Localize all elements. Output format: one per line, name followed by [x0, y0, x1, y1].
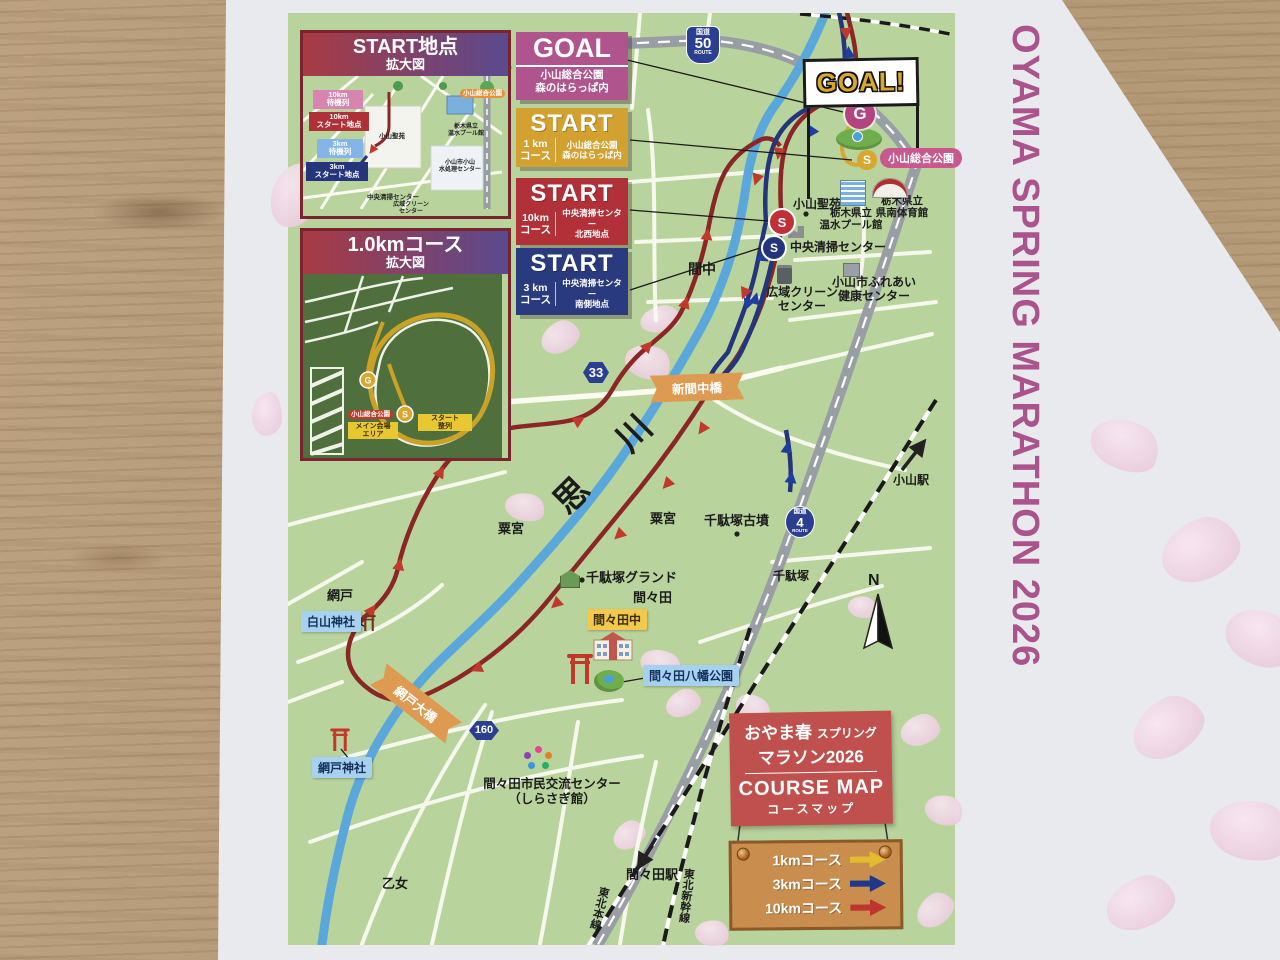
inset-1km-title: 1.0kmコース [303, 234, 508, 256]
label-hakusan-jinja: 白山神社 [301, 611, 361, 632]
inset-label-clean: 広域クリーン センター [388, 202, 434, 216]
label-otome: 乙女 [382, 876, 408, 891]
pool-building-icon [840, 180, 866, 206]
label-kennan-gym: 栃木県立 県南体育館 [866, 195, 938, 220]
inset-1km-course: 1.0kmコース 拡大図 G S [300, 228, 511, 461]
start-10km-course: 10km コース [520, 212, 556, 236]
label-oyama-sogo-park: 小山総合公園 [880, 148, 962, 168]
label-mamada: 間々田 [633, 590, 672, 605]
label-sendazuka: 千駄塚 [773, 569, 809, 583]
pond-icon [604, 675, 614, 683]
label-mamada-station: 間々田駅 [626, 867, 678, 882]
cherry-petal [1099, 868, 1182, 939]
start-marker-10km: S [768, 208, 796, 236]
legend-title-en-sub: コースマップ [731, 799, 893, 819]
inset-label-seien: 小山聖苑 [372, 133, 412, 140]
svg-text:G: G [364, 376, 371, 386]
cherry-petal [1121, 685, 1213, 770]
goal-callout-location: 小山総合公園 森のはらっぱ内 [516, 65, 628, 100]
start-marker-1km: S [857, 150, 877, 170]
label-ajito-jinja: 網戸神社 [312, 757, 372, 778]
legend-title-sign: おやま春 スプリング マラソン2026 COURSE MAP コースマップ [729, 711, 893, 827]
legend-title-ja-sub: スプリング [817, 726, 877, 741]
route-4-route: ROUTE [786, 529, 814, 534]
arrow-3km-icon [850, 875, 886, 892]
side-title-vertical: OYAMA SPRING MARATHON 2026 [972, 24, 1046, 958]
start-1km-title: START [516, 108, 628, 136]
inset-tag-10km-wait: 10km 待機列 [313, 90, 363, 109]
legend-label-1km: 1kmコース [772, 850, 842, 871]
legend-title-ja: おやま春 [744, 723, 812, 743]
goal-gate-banner: GOAL! [803, 57, 920, 108]
start-callout-1km: START 1 km コース 小山総合公園 森のはらっぱ内 [516, 108, 628, 167]
inset-1km-park-pill: 小山総合公園 [348, 410, 393, 419]
nail-icon [737, 848, 750, 861]
label-ajito: 網戸 [327, 588, 353, 603]
torii-icon [361, 614, 377, 631]
start-3km-course: 3 km コース [520, 282, 556, 306]
label-mamanaka: 間中 [688, 261, 716, 278]
label-sendazuka-kofun: 千駄塚古墳 [704, 513, 769, 528]
cherry-petal [1204, 791, 1280, 870]
inset-1km-minimap: G S [303, 274, 502, 458]
course-map-paper: 間中 思 川 粟宮 粟宮 千駄塚古墳 千駄塚 千駄塚グランド 間々田 網戸 乙女… [0, 0, 1280, 960]
route-50-badge: 国道 50 ROUTE [686, 26, 720, 64]
route-50-route: ROUTE [687, 51, 719, 56]
goal-gate-left-post [807, 99, 810, 199]
building-icon [843, 263, 860, 277]
photo-of-course-map: 間中 思 川 粟宮 粟宮 千駄塚古墳 千駄塚 千駄塚グランド 間々田 網戸 乙女… [0, 0, 1280, 960]
legend-item-3km: 3kmコース [732, 871, 900, 896]
inset-start-subtitle: 拡大図 [303, 58, 508, 72]
label-mamada-hachiman-park: 間々田八幡公園 [643, 665, 739, 686]
legend-item-1km: 1kmコース [732, 847, 900, 872]
fountain-icon [852, 131, 863, 142]
legend-title-ja-line2: マラソン2026 [730, 742, 892, 770]
inset-1km-title-bar: 1.0kmコース 拡大図 [303, 231, 508, 274]
cherry-petal [1216, 596, 1280, 679]
compass-n-label: N [868, 572, 880, 591]
label-sendazuka-ground: 千駄塚グランド [586, 570, 677, 585]
legend-title-en: COURSE MAP [730, 776, 892, 802]
label-fureai-center: 小山市ふれあい 健康センター [828, 275, 920, 303]
start-marker-3km: S [761, 235, 787, 261]
legend-divider [745, 771, 878, 774]
start-1km-location: 小山総合公園 森のはらっぱ内 [556, 140, 624, 161]
torii-icon [566, 652, 594, 684]
shirasagi-flower-logo [524, 746, 552, 770]
cherry-petal [1152, 508, 1248, 592]
parking-lot [311, 368, 343, 454]
inset-1km-main-area: メイン会場 エリア [348, 422, 398, 439]
label-mamada-junior-high: 間々田中 [587, 609, 647, 630]
svg-text:S: S [402, 410, 408, 420]
cherry-petal [252, 392, 282, 436]
torii-icon [329, 727, 351, 751]
inset-label-seiso: 中央清掃センター [362, 194, 424, 201]
route-50-number: 50 [687, 36, 719, 51]
inset-start-title: START地点 [303, 36, 508, 58]
label-shimin-center: 間々田市民交流センター （しらさぎ館） [476, 777, 628, 807]
inset-1km-start-grid: スタート 整列 [418, 414, 472, 431]
legend-label-3km: 3kmコース [773, 874, 843, 895]
start-10km-location: 中央清掃センター 北西地点 [556, 208, 624, 240]
label-shinmamanaka-bridge: 新間中橋 [650, 372, 745, 402]
inset-label-mizushori: 小山市小山 水処理センター [434, 160, 486, 174]
legend-label-10km: 10kmコース [765, 898, 842, 919]
inset-label-park: 小山総合公園 [460, 89, 505, 98]
school-building-icon [592, 632, 634, 662]
legend-course-board: 1kmコース 3kmコース 10kmコース [729, 839, 904, 931]
label-awanomiya-west: 粟宮 [498, 521, 524, 536]
arrow-10km-icon [850, 899, 886, 916]
nail-icon [879, 845, 892, 858]
start-3km-location: 中央清掃センター 南側地点 [556, 278, 624, 310]
inset-tag-3km-start: 3km スタート地点 [306, 162, 368, 181]
cherry-petal [1083, 408, 1168, 483]
start-callout-10km: START 10km コース 中央清掃センター 北西地点 [516, 178, 628, 245]
label-awanomiya-east: 粟宮 [650, 511, 676, 526]
start-callout-3km: START 3 km コース 中央清掃センター 南側地点 [516, 248, 628, 315]
label-chuo-seiso-center: 中央清掃センター [790, 240, 886, 254]
start-10km-title: START [516, 178, 628, 206]
inset-tag-10km-start: 10km スタート地点 [309, 112, 369, 131]
inset-tag-3km-wait: 3km 待機列 [317, 139, 363, 158]
route-4-number: 4 [786, 516, 814, 529]
goal-callout-box: GOAL 小山総合公園 森のはらっぱ内 [516, 32, 628, 100]
inset-label-pool: 栃木県立 温水プール館 [440, 124, 492, 138]
route-4-badge: 国道 4 ROUTE [785, 506, 815, 538]
trash-bin-icon [777, 268, 792, 284]
legend-item-10km: 10kmコース [732, 895, 900, 920]
start-3km-title: START [516, 248, 628, 276]
inset-start-title-bar: START地点 拡大図 [303, 33, 508, 76]
label-oyama-station: 小山駅 [893, 473, 929, 487]
inset-1km-subtitle: 拡大図 [303, 256, 508, 270]
goal-callout-title: GOAL [516, 32, 628, 65]
start-1km-course: 1 km コース [520, 138, 556, 162]
